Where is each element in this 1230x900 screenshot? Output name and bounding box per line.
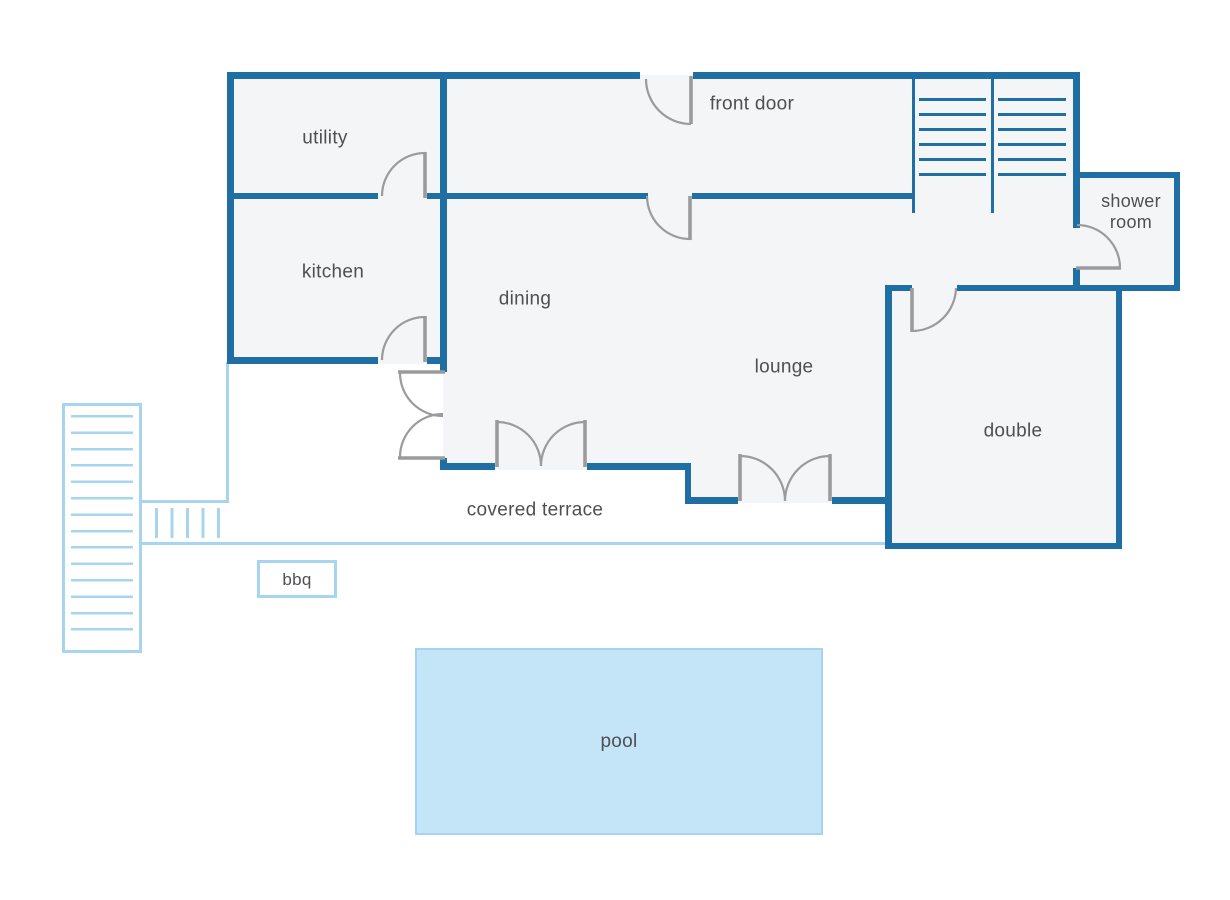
wall [440, 72, 447, 372]
terrace-west-french-doors [398, 372, 445, 458]
label-bbq: bbq [282, 569, 311, 590]
wall [1116, 285, 1122, 549]
label-kitchen: kitchen [302, 262, 364, 283]
wall [1073, 72, 1080, 228]
decking-boards [71, 415, 133, 644]
label-utility: utility [302, 128, 347, 149]
terrace-edge-line [140, 542, 885, 545]
label-dining: dining [499, 289, 552, 310]
wall [693, 72, 1080, 79]
wall [227, 72, 640, 79]
garden-steps [155, 508, 220, 538]
wall [957, 285, 1180, 291]
garden-path-horizontal [140, 500, 229, 503]
decking [62, 403, 142, 653]
double-room-floor [885, 285, 1122, 549]
label-lounge: lounge [755, 357, 814, 378]
stairs-treads [919, 98, 986, 179]
wall [692, 193, 912, 199]
garden-path-vertical [226, 362, 229, 502]
label-pool: pool [600, 731, 637, 752]
label-front-door: front door [710, 94, 794, 115]
wall [832, 497, 888, 504]
utility-kitchen-floor [227, 75, 447, 364]
wall [587, 463, 688, 470]
label-double: double [984, 421, 1043, 442]
stairs-treads [998, 98, 1066, 179]
wall [1073, 172, 1180, 178]
floor-plan: utility kitchen front door dining lounge… [0, 0, 1230, 900]
pool: pool [415, 648, 823, 835]
wall [885, 285, 892, 549]
stairs-left-rail [912, 75, 915, 213]
wall [227, 193, 378, 199]
stairs-center-rail [991, 75, 994, 213]
bbq-box: bbq [257, 560, 337, 598]
label-covered-terrace: covered terrace [467, 500, 604, 521]
wall [685, 497, 738, 504]
wall [227, 357, 378, 364]
lounge-lower-floor [685, 195, 888, 503]
wall [885, 543, 1122, 549]
wall [447, 193, 648, 199]
wall [440, 463, 495, 470]
wall [227, 72, 234, 364]
label-shower-room: shower room [1085, 191, 1177, 233]
